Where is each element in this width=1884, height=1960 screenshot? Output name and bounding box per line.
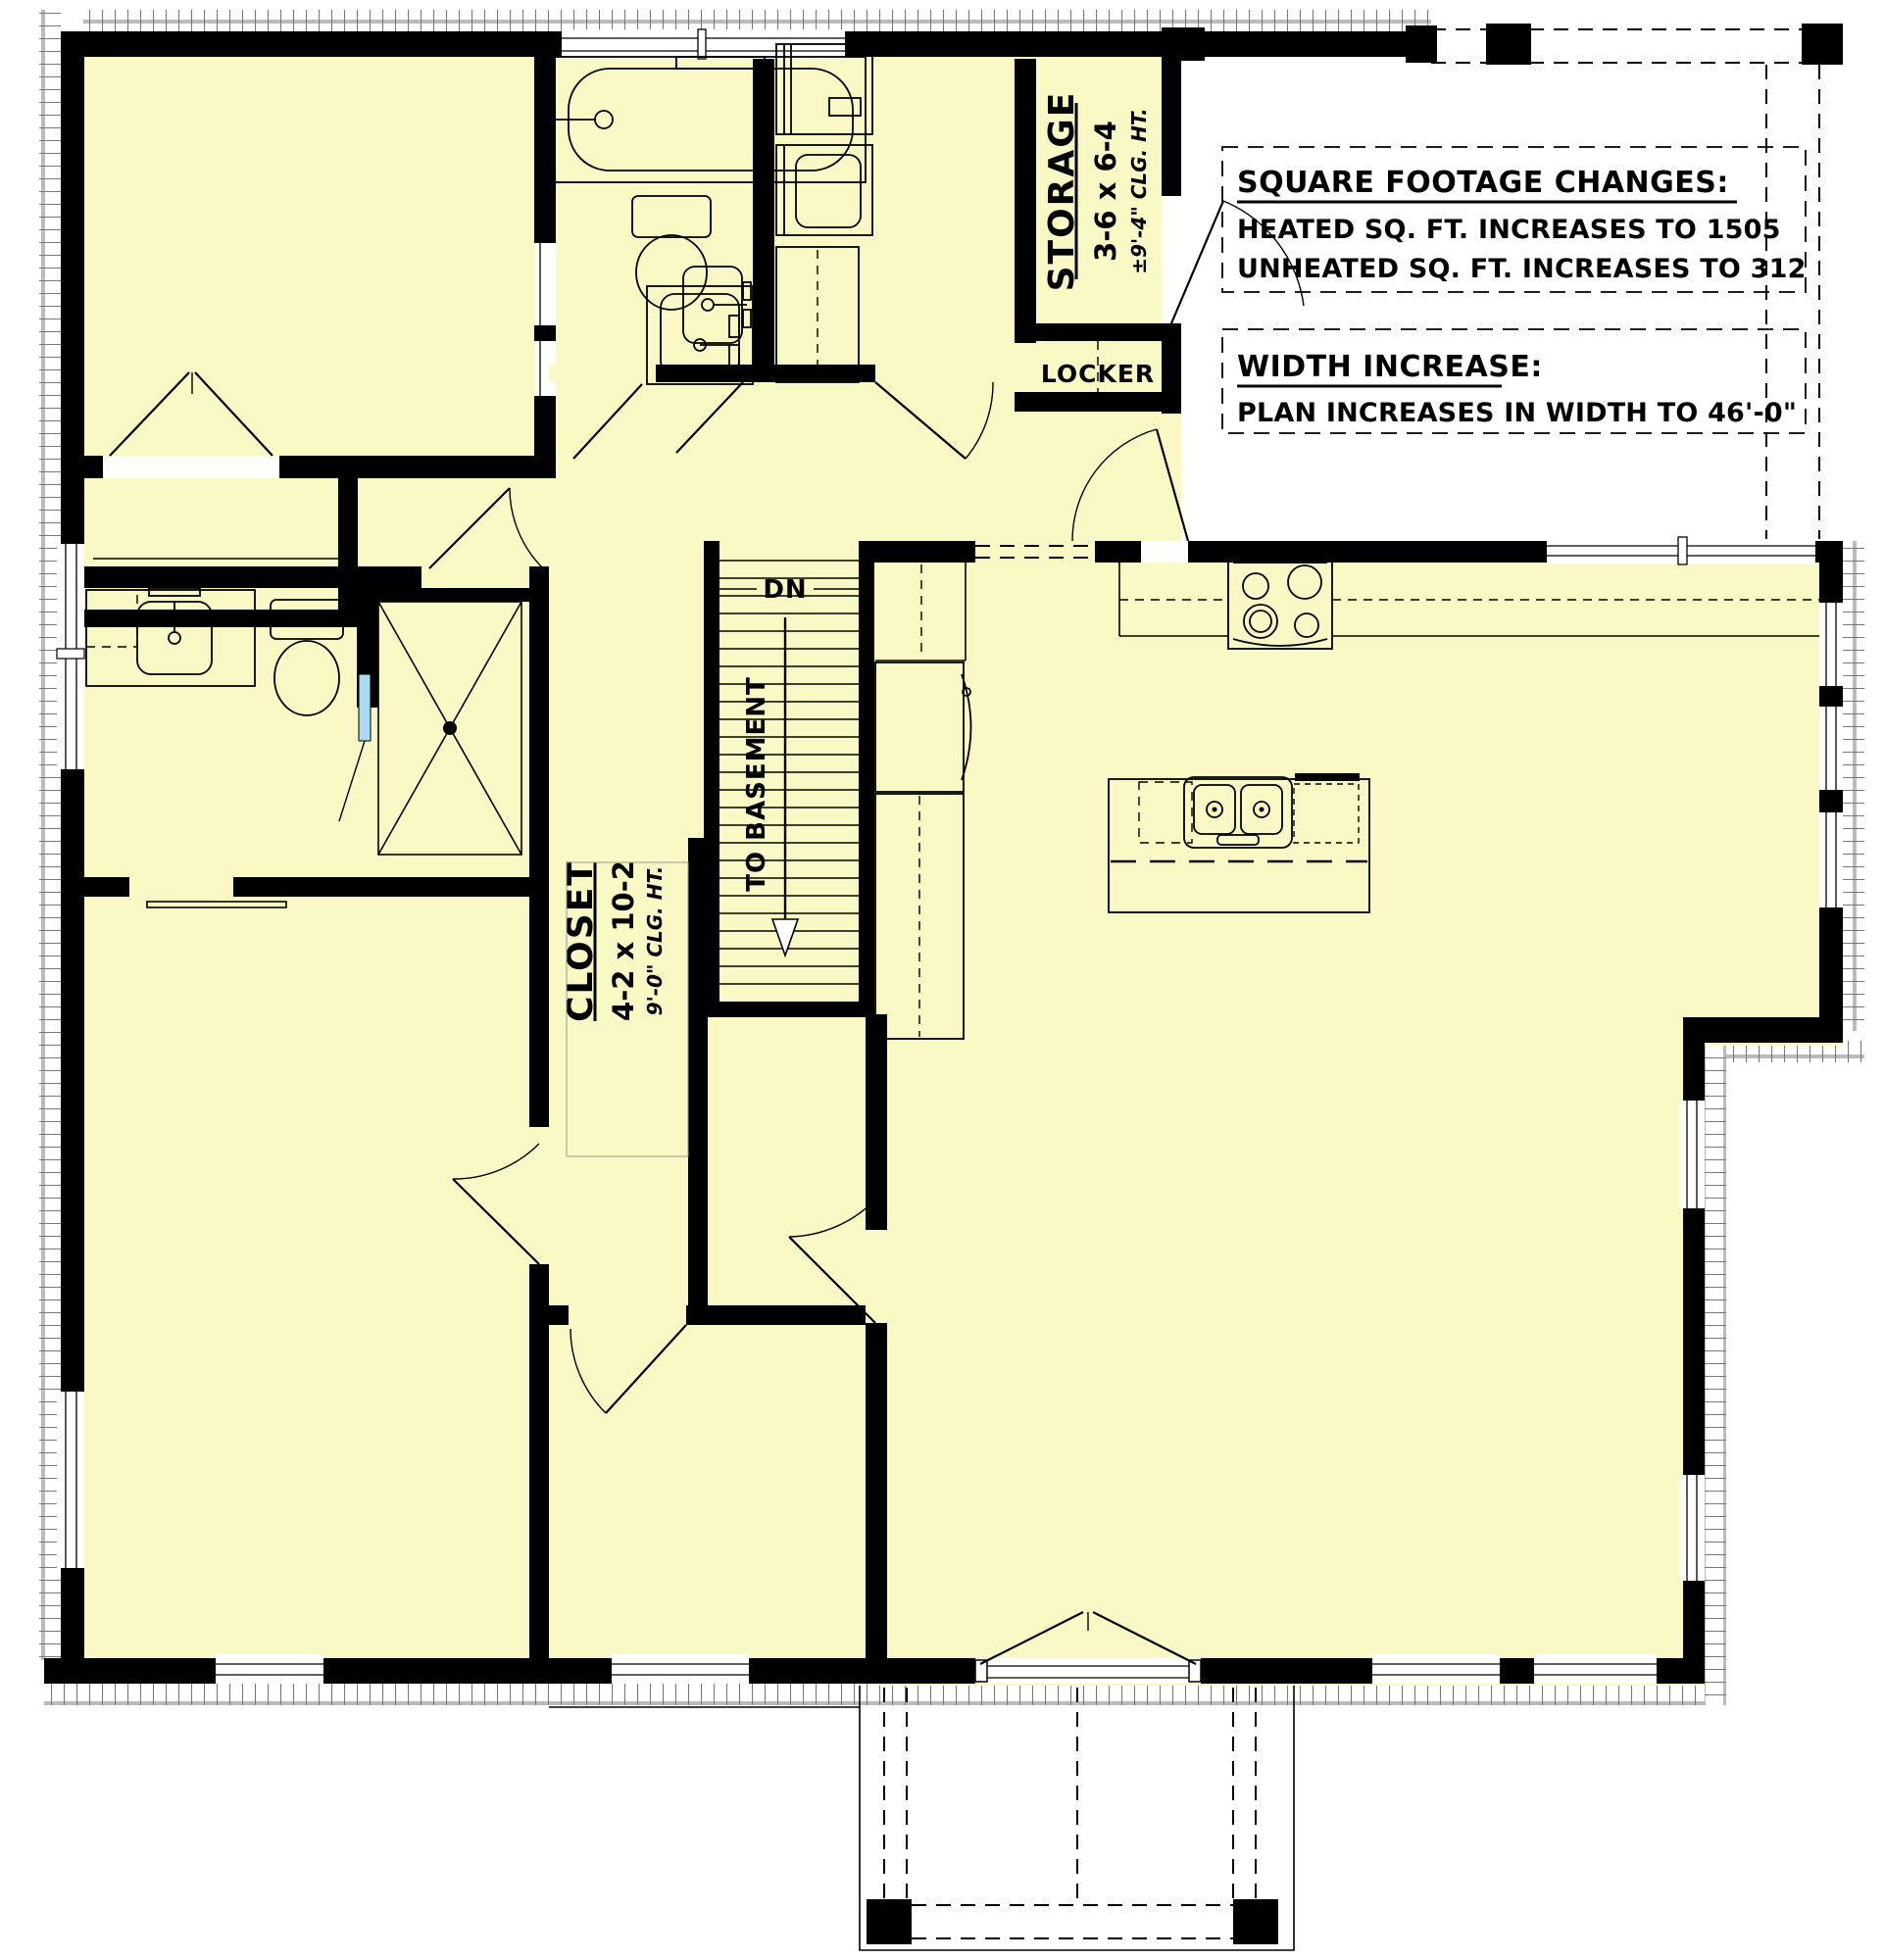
locker-label: LOCKER (1041, 360, 1155, 388)
stairs-down-label: DN (763, 575, 807, 605)
closet-dims: 4-2 x 10-2 (607, 860, 640, 1021)
stairs-destination-label: TO BASEMENT (742, 676, 771, 891)
floor-plan-drawing: DN TO BASEMENT STORAGE (0, 0, 1884, 1960)
floor-plan-page: DN TO BASEMENT STORAGE (0, 0, 1884, 1960)
width-note-title: WIDTH INCREASE: (1237, 350, 1543, 384)
bottom-porch (549, 1686, 1294, 1950)
sqft-note-title: SQUARE FOOTAGE CHANGES: (1237, 166, 1729, 200)
closet-ceiling: 9'-0" CLG. HT. (643, 866, 667, 1016)
sqft-note-line1: HEATED SQ. FT. INCREASES TO 1505 (1237, 215, 1781, 245)
storage-ceiling: ±9'-4" CLG. HT. (1127, 108, 1151, 273)
width-note-line1: PLAN INCREASES IN WIDTH TO 46'-0" (1237, 398, 1797, 428)
notes: SQUARE FOOTAGE CHANGES: HEATED SQ. FT. I… (1222, 147, 1807, 433)
storage-dims: 3-6 x 6-4 (1089, 121, 1122, 262)
sqft-note-line2: UNHEATED SQ. FT. INCREASES TO 312 (1237, 254, 1807, 284)
